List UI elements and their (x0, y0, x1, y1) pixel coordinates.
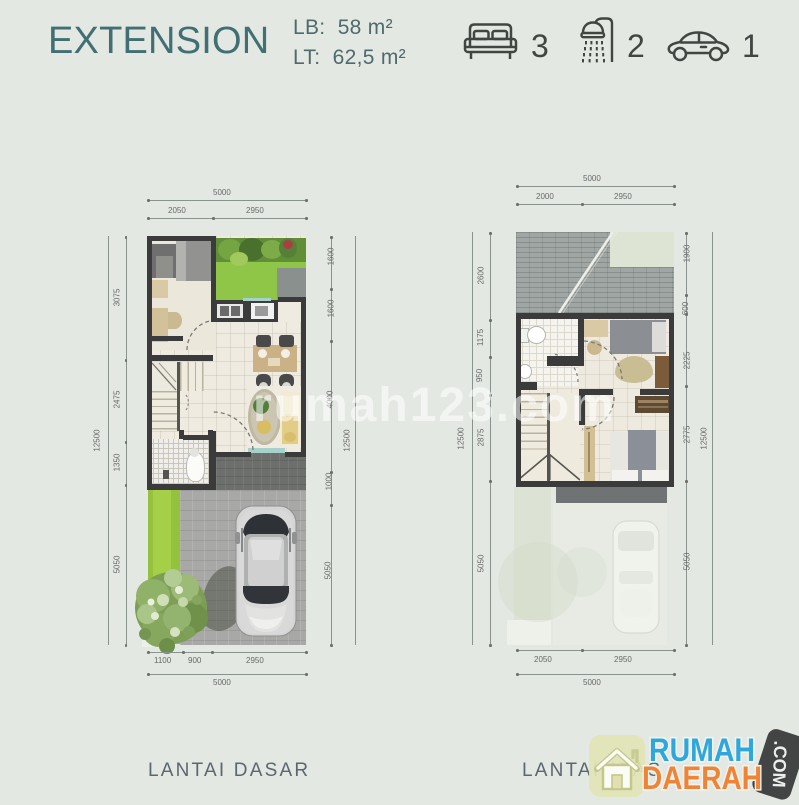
svg-text:DAERAH: DAERAH (642, 760, 762, 796)
svg-text:.COM: .COM (769, 740, 791, 788)
